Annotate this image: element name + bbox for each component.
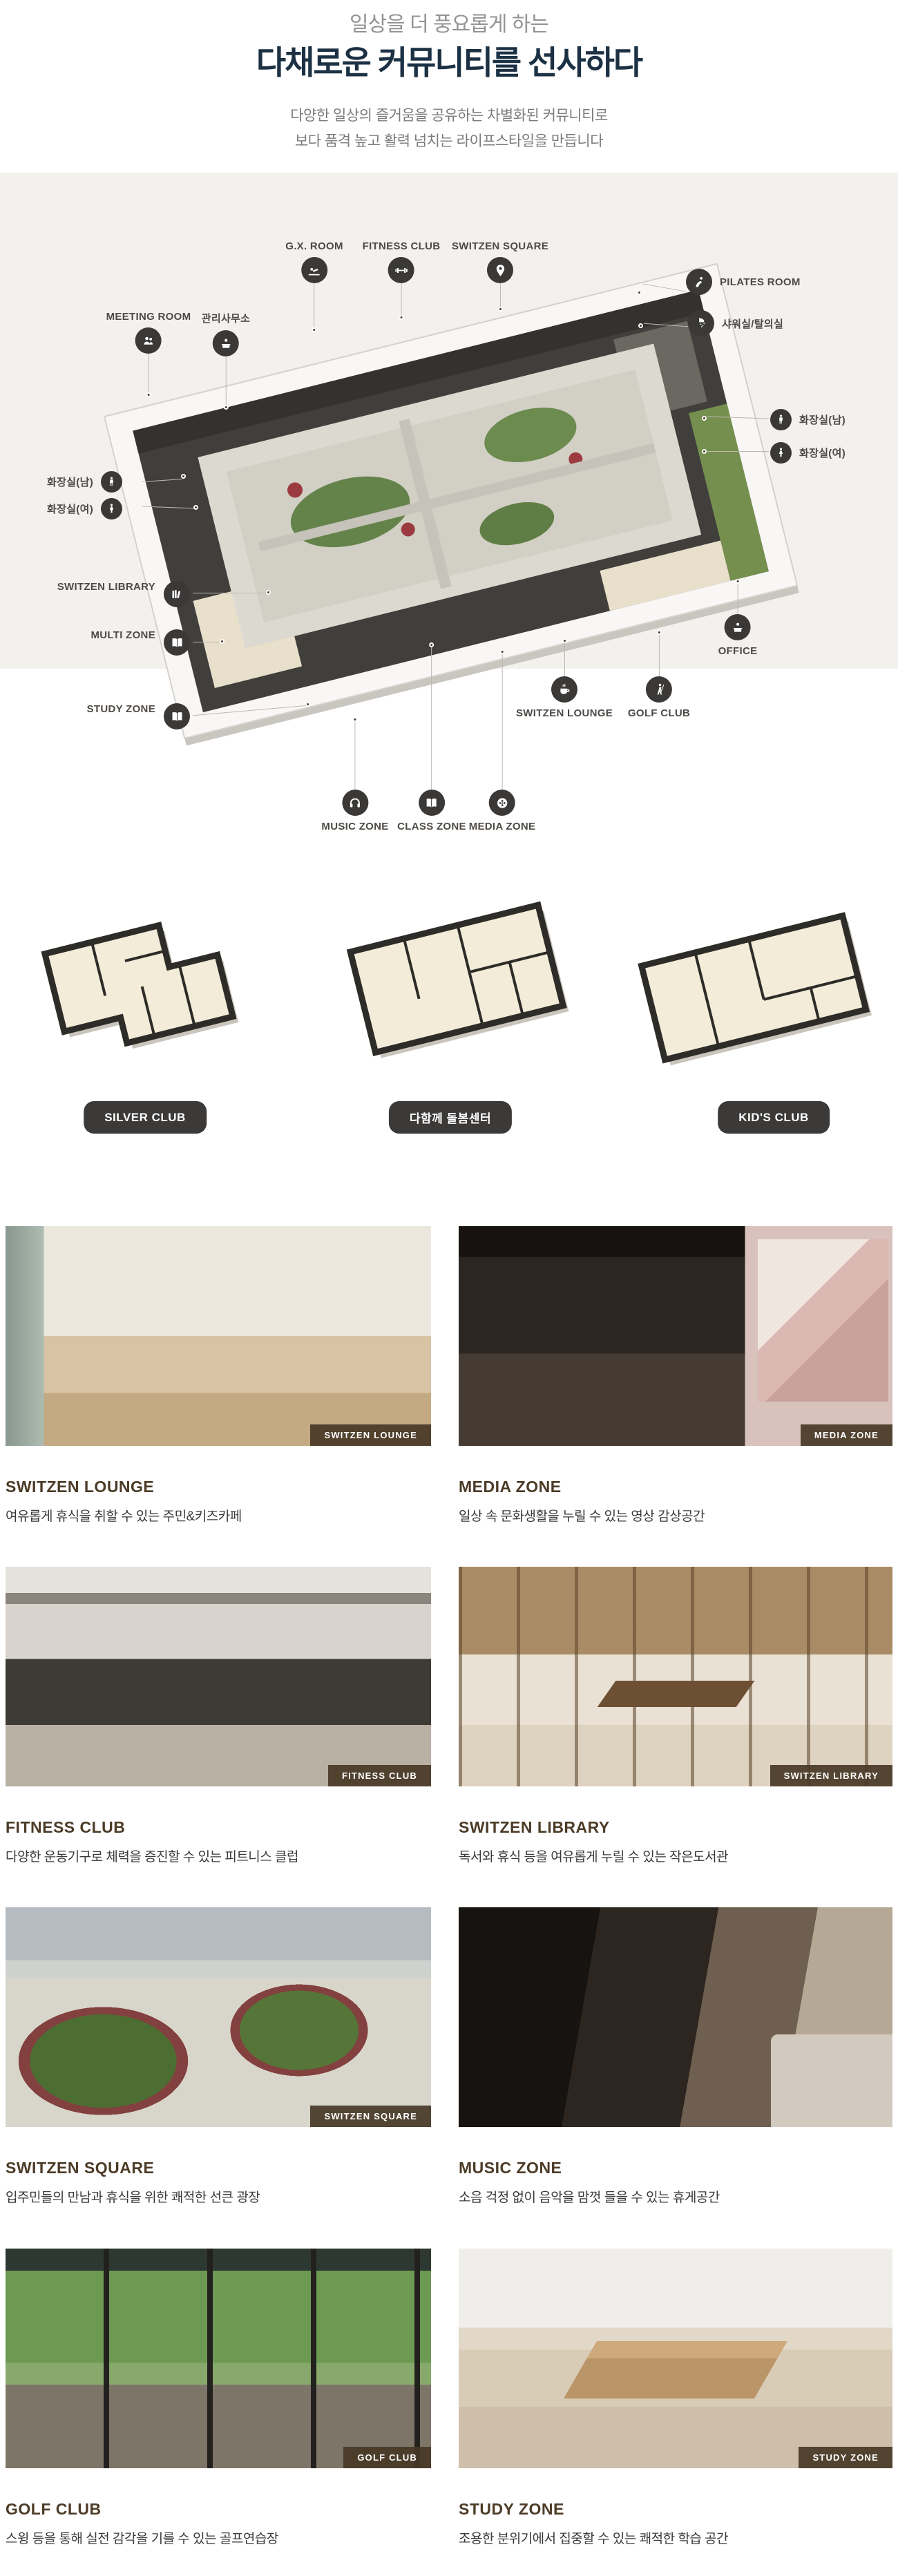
male-icon xyxy=(770,409,792,430)
reception-desk-icon xyxy=(725,614,751,640)
photo-badge: GOLF CLUB xyxy=(343,2447,431,2468)
photo-badge: MEDIA ZONE xyxy=(801,1424,892,1446)
gallery-item-title: SWITZEN LIBRARY xyxy=(459,1818,892,1837)
plan-label-multi-zone: MULTI ZONE xyxy=(52,629,155,641)
page-title: 다채로운 커뮤니티를 선사하다 xyxy=(0,36,898,84)
plan-label-toilet-female-left: 화장실(여) xyxy=(47,498,122,519)
plan-marker-dot xyxy=(193,505,198,510)
plan-label-gx-room: G.X. ROOM xyxy=(285,240,343,332)
plan-marker-dot xyxy=(223,405,228,410)
gallery-item-desc: 여유롭게 휴식을 취할 수 있는 주민&키즈카페 xyxy=(6,1506,431,1525)
plan-label-text: 관리사무소 xyxy=(202,311,251,325)
daycare-floorplan xyxy=(321,872,591,1079)
plan-label-text: MUSIC ZONE xyxy=(321,821,388,832)
music-zone-photo: MUSIC ZONE xyxy=(459,1907,892,2127)
pilates-icon xyxy=(686,269,712,295)
gallery-item-fitness-club: FITNESS CLUB FITNESS CLUB 다양한 운동기구로 체력을 … xyxy=(6,1567,431,1865)
page-description-line2: 보다 품격 높고 활력 넘치는 라이프스타일을 만듭니다 xyxy=(0,130,898,151)
photo-badge: MUSIC ZONE xyxy=(800,2106,892,2127)
leader-line xyxy=(564,643,565,676)
plan-label-text: G.X. ROOM xyxy=(285,240,343,252)
plan-label-text: CLASS ZONE xyxy=(397,821,466,832)
plan-marker-dot xyxy=(312,327,316,332)
silver-club-label: SILVER CLUB xyxy=(84,1101,207,1134)
fitness-club-photo: FITNESS CLUB xyxy=(6,1567,431,1786)
study-zone-photo: STUDY ZONE xyxy=(459,2249,892,2468)
gallery-item-desc: 입주민들의 만남과 휴식을 위한 쾌적한 선큰 광장 xyxy=(6,2187,431,2206)
plan-marker-dot xyxy=(736,579,741,584)
leader-line xyxy=(401,283,402,315)
plan-marker-dot xyxy=(638,323,643,328)
plan-marker-dot xyxy=(656,630,661,635)
gallery-item-music-zone: MUSIC ZONE MUSIC ZONE 소음 걱정 없이 음악을 맘껏 들을… xyxy=(459,1907,892,2206)
plan-label-media-zone: MEDIA ZONE xyxy=(469,649,536,832)
open-book-icon xyxy=(419,790,445,816)
open-book-icon xyxy=(164,629,190,656)
plan-marker-dot xyxy=(637,290,642,295)
golf-club-photo: GOLF CLUB xyxy=(6,2249,431,2468)
plan-label-office: OFFICE xyxy=(718,579,758,657)
gallery-item-title: MEDIA ZONE xyxy=(459,1478,892,1496)
page-subtitle: 일상을 더 풍요롭게 하는 xyxy=(0,7,898,37)
gallery-item-desc: 다양한 운동기구로 체력을 증진할 수 있는 피트니스 클럽 xyxy=(6,1847,431,1865)
photo-badge: SWITZEN LOUNGE xyxy=(310,1424,431,1446)
leader-line xyxy=(502,654,503,790)
gallery-item-title: STUDY ZONE xyxy=(459,2500,892,2519)
plan-label-text: GOLF CLUB xyxy=(628,707,690,719)
gallery-item-desc: 소음 걱정 없이 음악을 맘껏 들을 수 있는 휴게공간 xyxy=(459,2187,892,2206)
plan-label-fitness-club: FITNESS CLUB xyxy=(363,240,441,320)
plan-marker-dot xyxy=(146,392,151,397)
daycare-center-label: 다함께 돌봄센터 xyxy=(389,1101,512,1134)
gallery-item-switzen-library: SWITZEN LIBRARY SWITZEN LIBRARY 독서와 휴식 등… xyxy=(459,1567,892,1865)
plan-marker-dot xyxy=(352,717,357,722)
leader-line xyxy=(658,635,659,676)
coffee-cup-icon xyxy=(551,676,577,703)
plan-marker-dot xyxy=(305,702,310,707)
gallery-item-desc: 스윙 등을 통해 실전 감각을 기를 수 있는 골프연습장 xyxy=(6,2528,431,2547)
plan-label-toilet-male-right: 화장실(남) xyxy=(770,409,846,430)
plan-label-management-office: 관리사무소 xyxy=(202,311,251,410)
gallery-item-media-zone: MEDIA ZONE MEDIA ZONE 일상 속 문화생활을 누릴 수 있는… xyxy=(459,1226,892,1525)
gallery-item-title: MUSIC ZONE xyxy=(459,2159,892,2177)
male-icon xyxy=(101,471,122,493)
plan-marker-dot xyxy=(702,416,707,421)
books-icon xyxy=(164,581,190,607)
plan-marker-dot xyxy=(702,449,707,454)
plan-label-text: OFFICE xyxy=(718,645,758,657)
golfer-icon xyxy=(646,676,672,703)
plan-label-multi-zone-icon xyxy=(164,629,190,656)
plan-label-pilates-room: PILATES ROOM xyxy=(686,269,801,295)
page-description-line1: 다양한 일상의 즐거움을 공유하는 차별화된 커뮤니티로 xyxy=(0,104,898,125)
leader-line xyxy=(499,283,500,307)
lounge-photo: SWITZEN LOUNGE xyxy=(6,1226,431,1446)
plan-label-toilet-female-right: 화장실(여) xyxy=(770,442,846,464)
plan-label-shower-room: 샤워실/탈의실 xyxy=(688,310,783,336)
plan-label-text: FITNESS CLUB xyxy=(363,240,441,252)
plan-label-switzen-square: SWITZEN SQUARE xyxy=(452,240,548,312)
plan-label-switzen-library-icon xyxy=(164,581,190,607)
plan-label-toilet-male-left: 화장실(남) xyxy=(47,471,122,493)
plan-marker-dot xyxy=(181,474,186,479)
plan-label-text: STUDY ZONE xyxy=(87,703,155,715)
community-page: 일상을 더 풍요롭게 하는 다채로운 커뮤니티를 선사하다 다양한 일상의 즐거… xyxy=(0,0,898,2576)
reception-desk-icon xyxy=(213,330,239,356)
plan-label-text: MEETING ROOM xyxy=(106,311,191,323)
club-label-text: 다함께 돌봄센터 xyxy=(410,1109,491,1126)
film-reel-icon xyxy=(489,790,515,816)
square-photo: SWITZEN SQUARE xyxy=(6,1907,431,2127)
plan-label-text: SWITZEN LIBRARY xyxy=(57,581,155,593)
gallery-item-switzen-square: SWITZEN SQUARE SWITZEN SQUARE 입주민들의 만남과 … xyxy=(6,1907,431,2206)
plan-label-study-zone-icon xyxy=(164,703,190,729)
silver-club-floorplan xyxy=(17,881,273,1088)
plan-marker-dot xyxy=(399,315,404,320)
plan-label-text: 화장실(여) xyxy=(47,502,93,516)
gallery-item-desc: 일상 속 문화생활을 누릴 수 있는 영상 감상공간 xyxy=(459,1506,892,1525)
plan-label-text: MEDIA ZONE xyxy=(469,821,536,832)
kids-club-label: KID'S CLUB xyxy=(718,1101,830,1134)
leader-line xyxy=(354,722,355,790)
plan-label-text: SWITZEN SQUARE xyxy=(452,240,548,252)
headphones-icon xyxy=(342,790,368,816)
plan-label-study-zone: STUDY ZONE xyxy=(52,703,155,715)
plan-marker-dot xyxy=(497,307,502,312)
club-label-text: KID'S CLUB xyxy=(738,1111,809,1125)
leader-line xyxy=(225,356,226,405)
plan-label-text: MULTI ZONE xyxy=(90,629,155,641)
plan-marker-dot xyxy=(562,638,567,643)
gallery-item-title: SWITZEN SQUARE xyxy=(6,2159,431,2177)
plan-label-text: 화장실(남) xyxy=(47,475,93,489)
leader-line xyxy=(738,584,738,614)
photo-badge: FITNESS CLUB xyxy=(328,1765,431,1786)
gallery-item-title: SWITZEN LOUNGE xyxy=(6,1478,431,1496)
plan-label-text: PILATES ROOM xyxy=(720,276,801,288)
leader-line xyxy=(432,647,432,790)
plan-label-text: 샤워실/탈의실 xyxy=(722,316,783,331)
plan-label-text: 화장실(남) xyxy=(799,412,846,427)
dumbbell-icon xyxy=(388,257,414,283)
open-book-icon xyxy=(164,703,190,729)
gallery-item-title: GOLF CLUB xyxy=(6,2500,431,2519)
location-pin-icon xyxy=(487,257,513,283)
leader-line xyxy=(314,283,314,327)
leader-line xyxy=(148,354,149,392)
female-icon xyxy=(770,442,792,464)
people-icon xyxy=(135,327,162,354)
leader-line xyxy=(707,451,769,452)
plan-marker-dot xyxy=(430,642,434,647)
club-label-text: SILVER CLUB xyxy=(104,1111,186,1125)
plan-label-music-zone: MUSIC ZONE xyxy=(321,717,388,832)
media-zone-photo: MEDIA ZONE xyxy=(459,1226,892,1446)
photo-badge: SWITZEN LIBRARY xyxy=(770,1765,892,1786)
plan-label-text: 화장실(여) xyxy=(799,446,846,460)
plan-marker-dot xyxy=(220,639,224,644)
plan-marker-dot xyxy=(266,590,271,595)
plan-label-switzen-library: SWITZEN LIBRARY xyxy=(52,581,155,593)
kids-club-floorplan xyxy=(618,881,888,1088)
shower-icon xyxy=(688,310,714,336)
library-photo: SWITZEN LIBRARY xyxy=(459,1567,892,1786)
gallery-item-switzen-lounge: SWITZEN LOUNGE SWITZEN LOUNGE 여유롭게 휴식을 취… xyxy=(6,1226,431,1525)
gallery-item-desc: 독서와 휴식 등을 여유롭게 누릴 수 있는 작은도서관 xyxy=(459,1847,892,1865)
gallery-item-study-zone: STUDY ZONE STUDY ZONE 조용한 분위기에서 집중할 수 있는… xyxy=(459,2249,892,2547)
leader-line xyxy=(193,642,222,642)
photo-badge: SWITZEN SQUARE xyxy=(310,2106,431,2127)
leader-line xyxy=(193,593,267,593)
photo-badge: STUDY ZONE xyxy=(799,2447,892,2468)
female-icon xyxy=(101,498,122,519)
gallery-item-desc: 조용한 분위기에서 집중할 수 있는 쾌적한 학습 공간 xyxy=(459,2528,892,2547)
plan-marker-dot xyxy=(500,649,505,654)
plan-label-meeting-room: MEETING ROOM xyxy=(106,311,191,397)
plan-label-golf-club: GOLF CLUB xyxy=(628,630,690,719)
gallery-item-title: FITNESS CLUB xyxy=(6,1818,431,1837)
gx-room-icon xyxy=(301,257,327,283)
plan-label-class-zone: CLASS ZONE xyxy=(397,642,466,832)
gallery-item-golf-club: GOLF CLUB GOLF CLUB 스윙 등을 통해 실전 감각을 기를 수… xyxy=(6,2249,431,2547)
